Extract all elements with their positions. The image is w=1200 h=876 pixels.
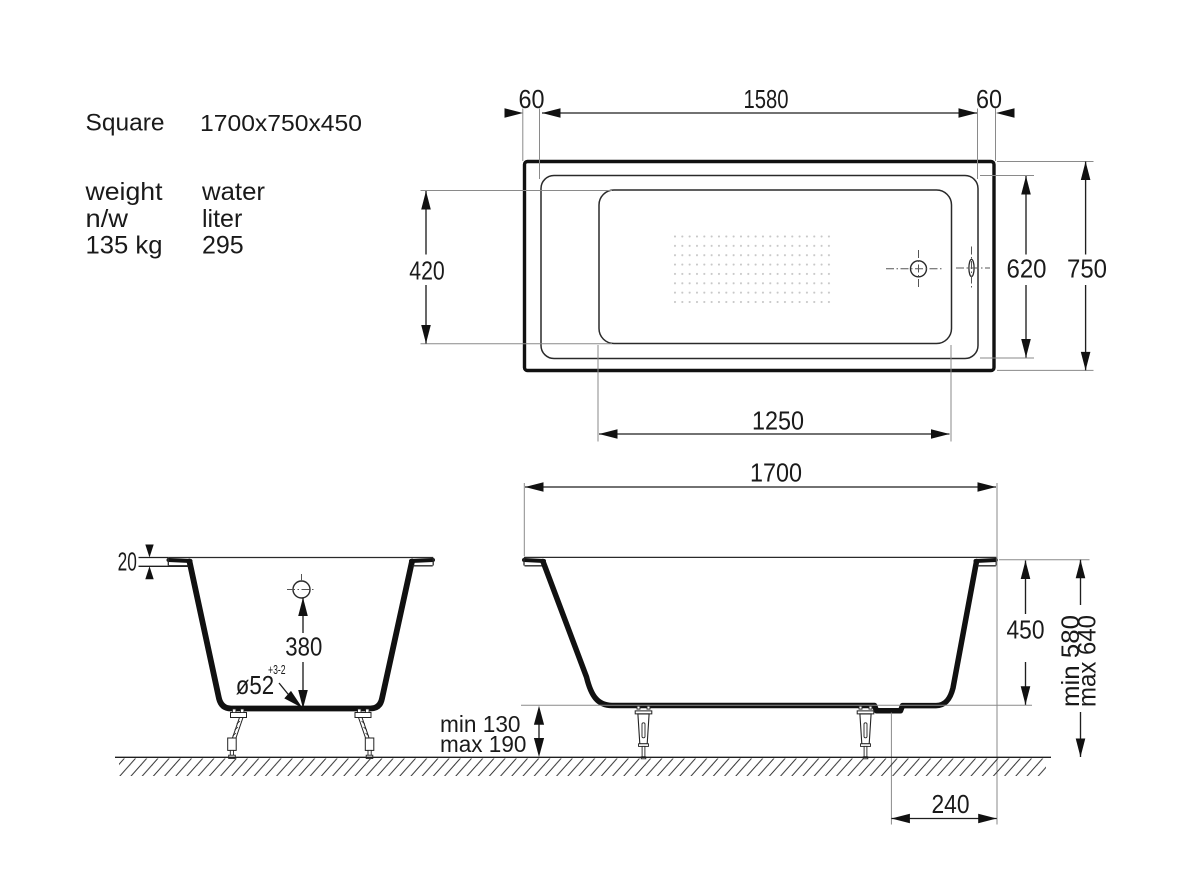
svg-text:max 190: max 190 [440,731,526,757]
svg-text:1250: 1250 [752,406,804,436]
svg-text:+3-2: +3-2 [268,662,286,677]
svg-text:n/w: n/w [86,205,130,233]
svg-text:weight: weight [84,178,162,206]
svg-text:1700: 1700 [750,457,802,487]
svg-text:135 kg: 135 kg [86,232,163,260]
svg-text:Square: Square [86,110,165,137]
svg-text:240: 240 [932,789,970,819]
svg-text:450: 450 [1007,615,1045,645]
svg-text:1700x750x450: 1700x750x450 [200,110,362,136]
svg-text:380: 380 [285,632,322,662]
svg-text:max 640: max 640 [1074,615,1102,707]
svg-text:water: water [201,178,265,206]
svg-text:750: 750 [1067,254,1107,284]
svg-text:liter: liter [202,205,242,233]
svg-text:1580: 1580 [744,84,789,114]
svg-text:60: 60 [976,84,1002,114]
svg-text:420: 420 [409,256,445,286]
svg-text:60: 60 [519,84,545,114]
svg-text:20: 20 [118,547,137,577]
svg-text:620: 620 [1007,254,1047,284]
svg-text:295: 295 [202,232,244,260]
